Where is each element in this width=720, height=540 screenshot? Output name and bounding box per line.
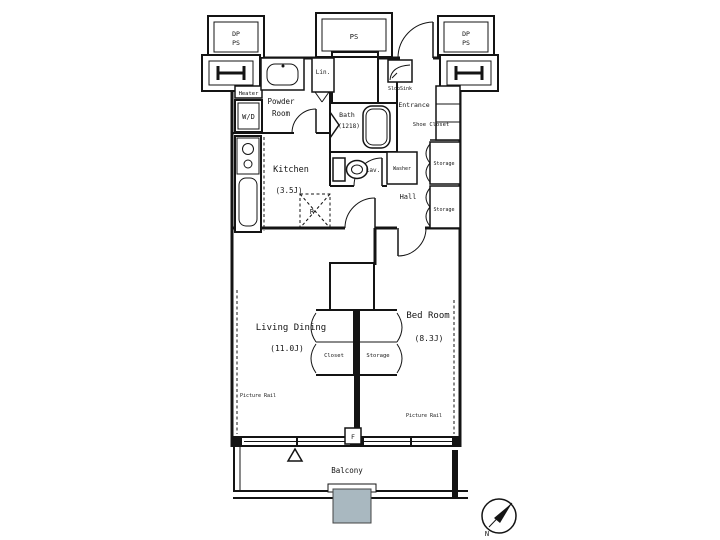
heater-box: Heater: [235, 86, 262, 98]
balcony-label: Balcony: [331, 466, 363, 475]
bath-size: (1218): [338, 123, 360, 130]
kitchen-room: Kitchen (3.5J): [273, 165, 309, 195]
shaft-label: PS: [350, 33, 358, 41]
evacuation-hatch: [328, 484, 376, 523]
linen-closet: Lin.: [312, 58, 334, 92]
shaft-label: PS: [232, 39, 240, 47]
linen-folding-door: [315, 92, 329, 102]
floorplan-image: DP PS PS DP PS: [0, 0, 720, 540]
kitchen-size: (3.5J): [275, 186, 302, 195]
vent-marker-icon: [288, 449, 302, 461]
living-door: [345, 198, 375, 228]
slop-sink-label: SlopSink: [388, 86, 412, 92]
picture-rail-label: Picture Rail: [240, 393, 276, 399]
powder-room-door: [292, 109, 316, 133]
washer-dryer-label: W/D: [242, 113, 255, 121]
bifold-door-icon: [397, 313, 402, 373]
compass-north-label: N: [485, 530, 489, 538]
washer-box: Washer: [387, 152, 417, 184]
pipe-shaft-center: [330, 263, 374, 310]
balcony: Balcony: [233, 447, 468, 523]
lav-label: Lav.: [366, 167, 380, 174]
pipe-shaft-top: [332, 52, 378, 103]
shoe-closet-label: Shoe Closet: [413, 122, 449, 128]
bed-room-size: (8.3J): [415, 334, 444, 343]
washer-label: Washer: [393, 166, 411, 172]
living-dining-size: (11.0J): [270, 344, 304, 353]
bed-room: Bed Room (8.3J) Picture Rail: [406, 300, 454, 434]
living-dining-room: Living Dining (11.0J) Picture Rail: [237, 290, 326, 434]
hall-label: Hall: [400, 193, 417, 201]
bed-room-label: Bed Room: [406, 311, 449, 321]
vanity-counter: [261, 58, 304, 90]
toilet: [333, 158, 368, 181]
powder-room: Powder Room: [261, 58, 304, 118]
kitchen-counter: [235, 136, 264, 232]
entrance-door: [398, 22, 433, 58]
kitchen-label: Kitchen: [273, 165, 309, 175]
bath-label: Bath: [339, 111, 355, 119]
bath-room: Bath (1218): [338, 106, 390, 148]
compass: N: [482, 499, 516, 538]
shaft-label: DP: [462, 30, 470, 38]
floorplan-svg: DP PS PS DP PS: [0, 0, 720, 540]
refrigerator-space: R: [300, 194, 330, 228]
linen-label: Lin.: [316, 69, 330, 76]
lav-room: Lav.: [333, 158, 380, 181]
entrance-label: Entrance: [398, 101, 429, 109]
bedroom-door: [398, 228, 426, 256]
shoe-closet: Shoe Closet: [413, 86, 460, 140]
slop-sink: SlopSink: [388, 60, 412, 92]
hall-storage-upper: Storage: [426, 142, 460, 184]
storage-label: Storage: [433, 161, 454, 167]
storage-label: Storage: [366, 353, 389, 359]
shaft-label: DP: [232, 30, 240, 38]
bifold-door-icon: [311, 313, 316, 373]
storage-label: Storage: [433, 207, 454, 213]
closet-label: Closet: [324, 353, 344, 359]
powder-room-label: Room: [272, 109, 291, 118]
picture-rail-label: Picture Rail: [406, 413, 442, 419]
hall-storage-lower: Storage: [426, 186, 460, 228]
living-dining-label: Living Dining: [256, 323, 326, 333]
floor-hatch: F: [345, 428, 361, 444]
central-core: Closet Storage: [311, 263, 402, 375]
powder-room-label: Powder: [267, 97, 295, 106]
shaft-box-top-center: PS: [316, 13, 392, 57]
heater-label: Heater: [239, 91, 260, 97]
floor-hatch-label: F: [351, 433, 355, 441]
washer-dryer-box: W/D: [235, 100, 262, 132]
shaft-box-top-left: DP PS: [208, 16, 264, 58]
shaft-label: PS: [462, 39, 470, 47]
balcony-partition: [452, 450, 458, 498]
shaft-box-top-right: DP PS: [438, 16, 494, 58]
